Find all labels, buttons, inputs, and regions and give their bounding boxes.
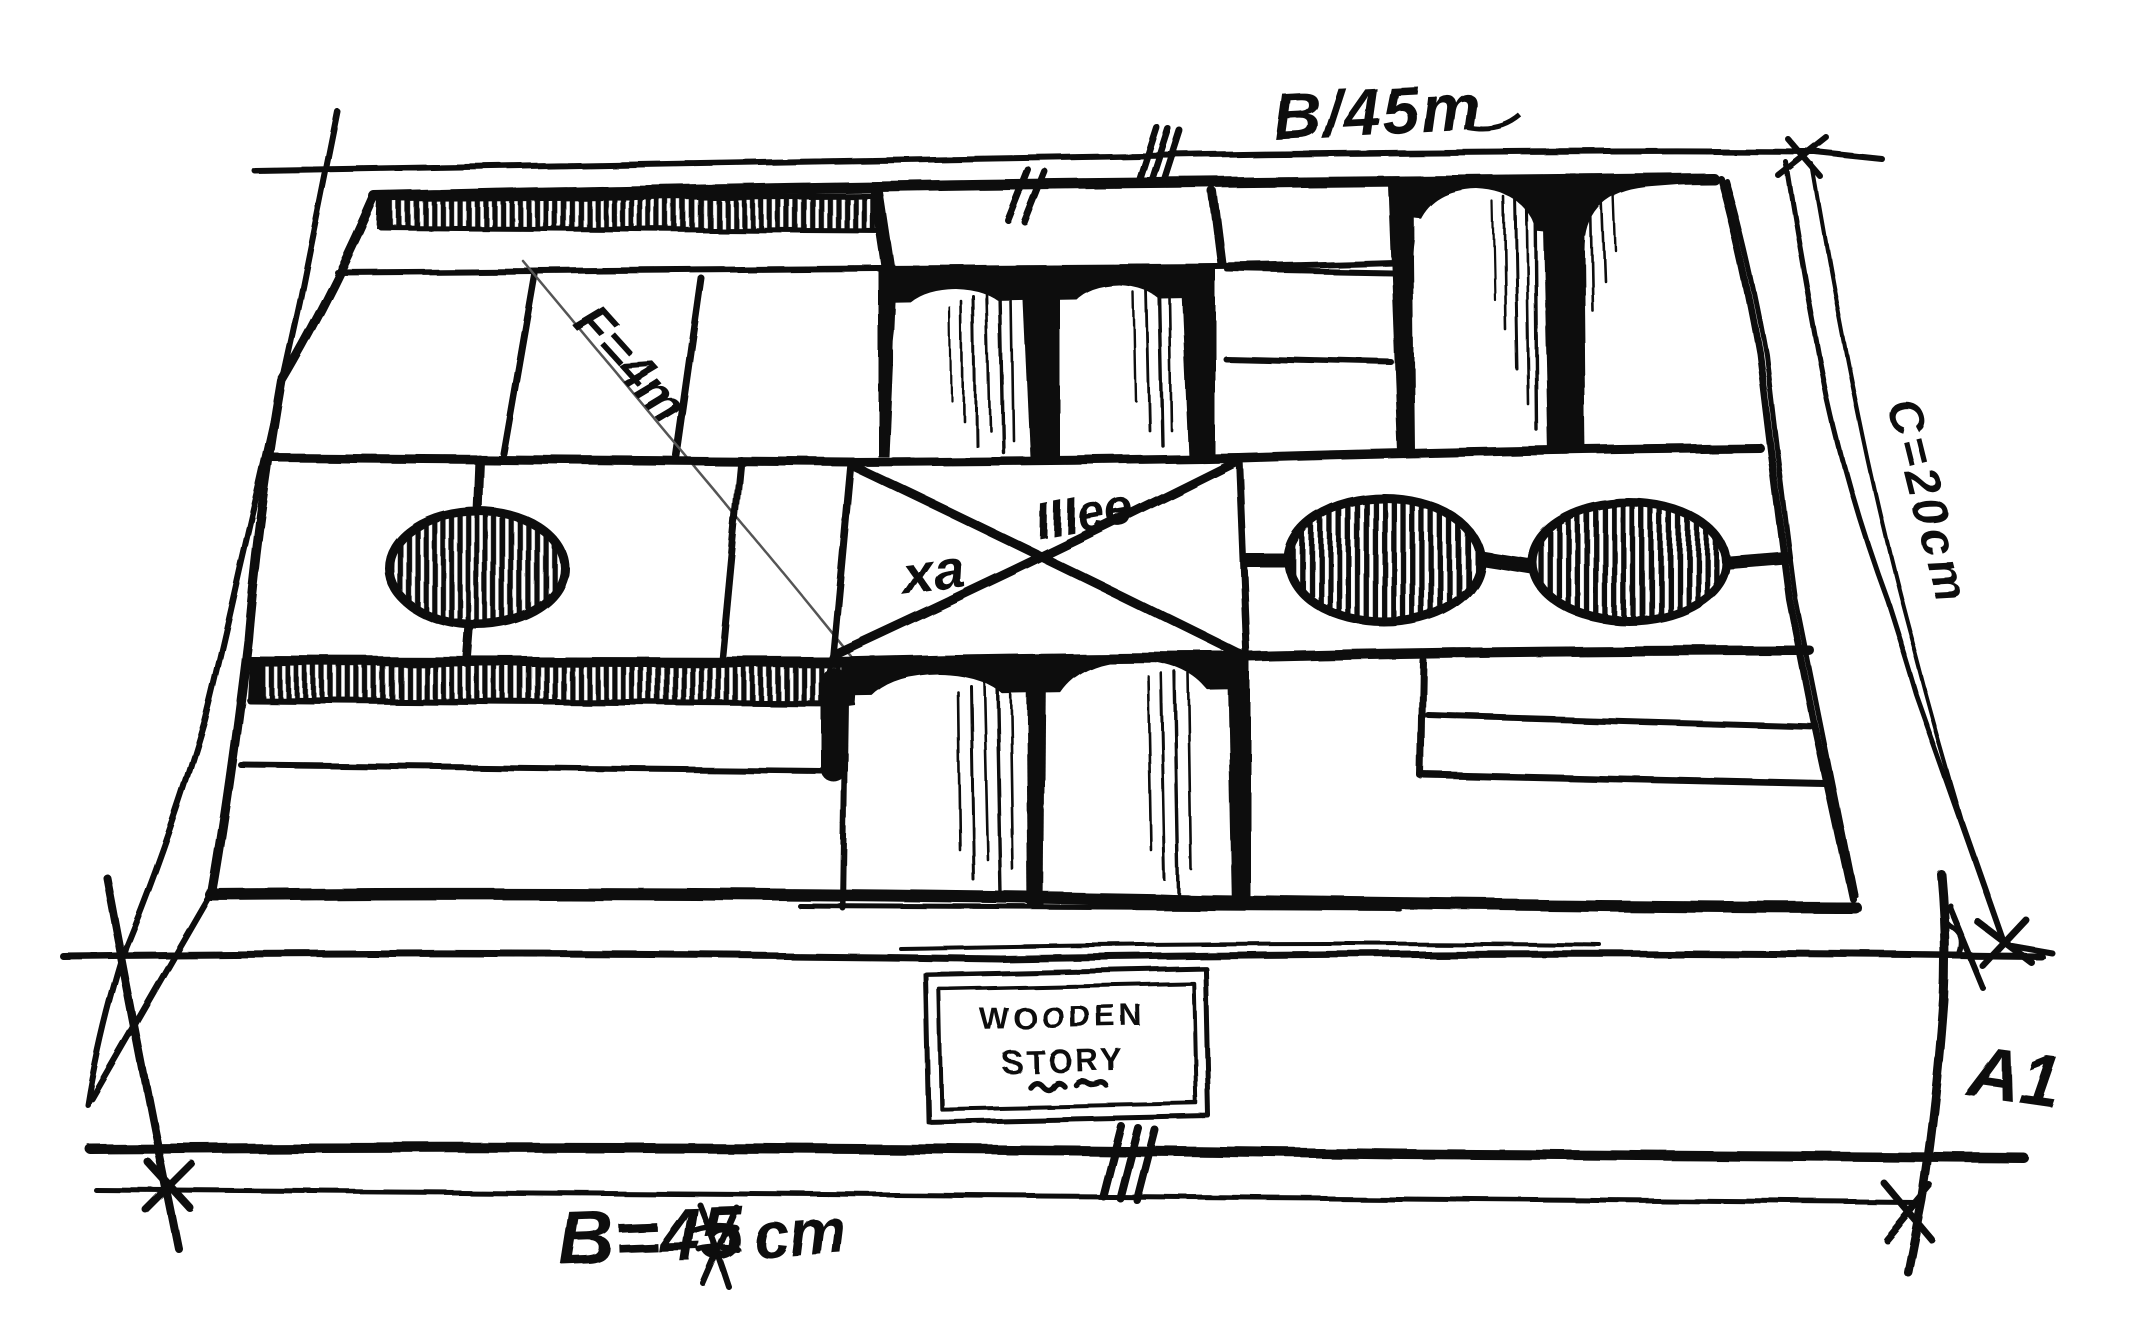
svg-text:STORY: STORY <box>1001 1042 1125 1081</box>
svg-text:cm: cm <box>751 1194 848 1272</box>
svg-text:B=45: B=45 <box>558 1191 746 1282</box>
svg-text:WOODEN: WOODEN <box>980 998 1148 1036</box>
svg-text:xa: xa <box>895 536 968 607</box>
svg-text:B/45m: B/45m <box>1272 69 1484 154</box>
svg-text:A1: A1 <box>1962 1031 2066 1123</box>
